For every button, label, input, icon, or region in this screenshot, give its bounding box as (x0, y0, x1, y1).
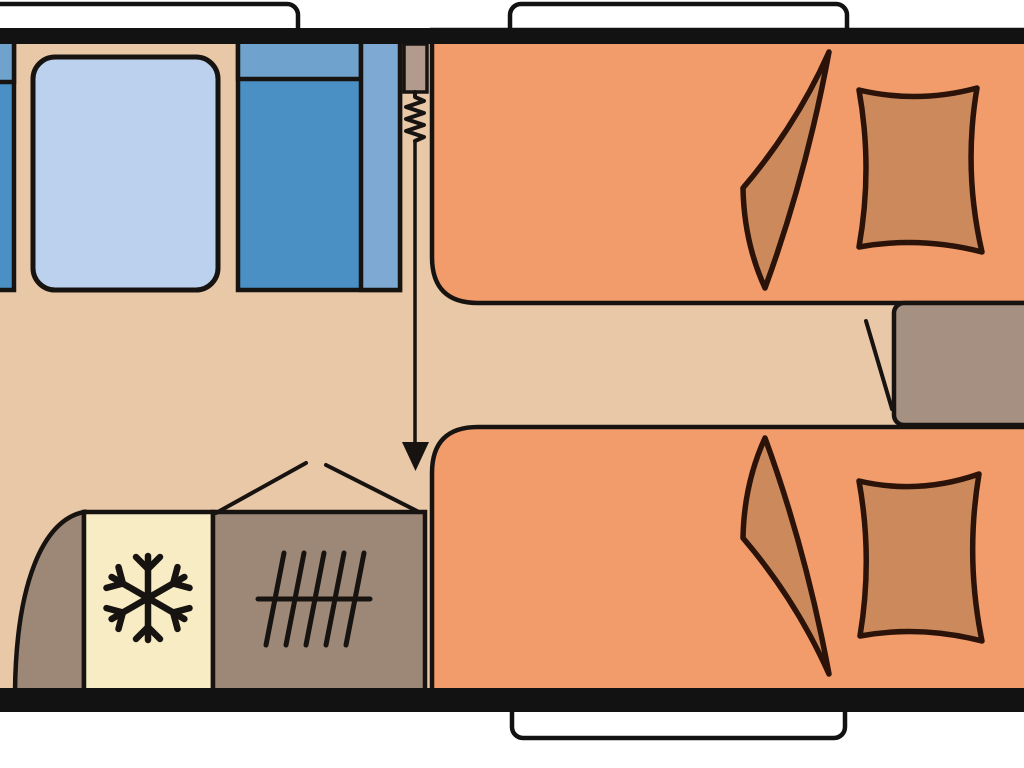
dinette (0, 36, 400, 290)
dinette-bench-right-side-strip (361, 36, 400, 290)
dinette-table (33, 57, 218, 290)
entrance-door (404, 44, 427, 92)
pillow-bottom-bed (859, 474, 982, 641)
pillow-top-bed (859, 88, 982, 252)
wall-top (0, 28, 1024, 44)
wall-bottom (0, 688, 1024, 712)
heater-cabinet (213, 512, 425, 692)
bedside-chest (894, 303, 1024, 425)
caravan-floorplan (0, 0, 1024, 768)
